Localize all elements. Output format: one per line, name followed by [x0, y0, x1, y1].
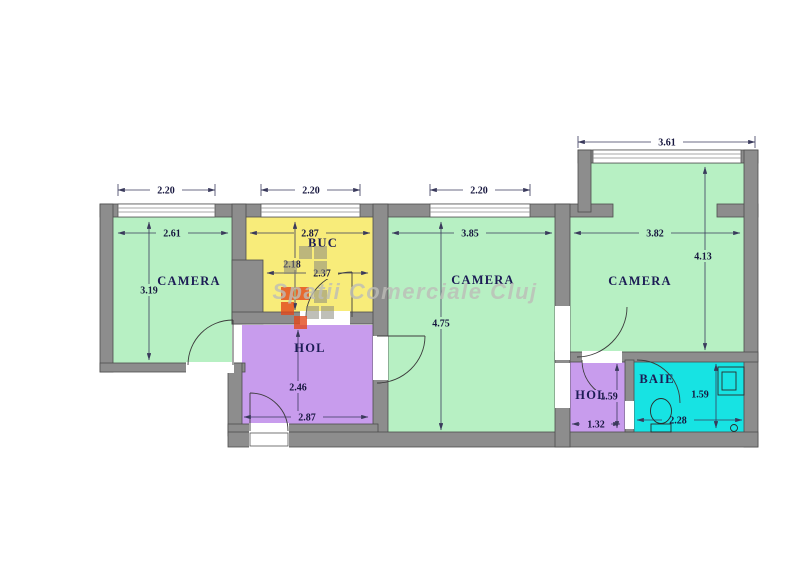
- dim-label: 4.75: [432, 319, 450, 330]
- dim-label: 2.20: [302, 186, 320, 197]
- wall-segment: [373, 204, 388, 433]
- dim-label: 1.32: [587, 420, 605, 431]
- dim-label: 2.61: [163, 229, 181, 240]
- logo-square: [314, 261, 327, 274]
- dim-label: 3.61: [658, 138, 676, 149]
- door-opening-hol-small: [582, 351, 622, 363]
- wall-segment: [578, 150, 591, 212]
- label-camera-left: CAMERA: [157, 274, 220, 288]
- floor-plan-svg: 2.20 2.20 2.20 3.61 2.61: [0, 0, 800, 566]
- dim-label: 2.46: [289, 383, 307, 394]
- dim-label: 3.82: [646, 229, 664, 240]
- door-opening-baie: [625, 401, 634, 429]
- dim-label: 2.87: [298, 413, 316, 424]
- logo-square-red: [294, 316, 307, 329]
- door-opening-camera-left: [186, 362, 234, 373]
- wall-segment: [228, 432, 758, 447]
- outside-patch: [570, 150, 578, 204]
- room-camera-middle: [388, 217, 555, 433]
- dim-label: 4.13: [694, 252, 712, 263]
- dim-label: 2.20: [470, 186, 488, 197]
- door-opening-hol-small-left: [555, 363, 570, 408]
- wall-segment: [228, 363, 242, 433]
- label-hol-main: HOL: [294, 341, 325, 355]
- dim-label: 2.20: [157, 186, 175, 197]
- logo-square: [321, 306, 334, 319]
- wall-segment: [744, 150, 758, 447]
- window-buc: [261, 204, 360, 217]
- logo-square: [314, 246, 327, 259]
- window-camera-left: [118, 204, 215, 217]
- window-camera-middle: [430, 204, 530, 217]
- entrance-step: [250, 433, 288, 446]
- label-camera-right: CAMERA: [608, 274, 671, 288]
- door-opening-camera-middle: [373, 336, 388, 380]
- dim-window-buc: 2.20: [261, 184, 360, 197]
- floor-plan-page: 2.20 2.20 2.20 3.61 2.61: [0, 0, 800, 566]
- dim-window-bay: 3.61: [578, 136, 755, 149]
- dim-window-middle: 2.20: [430, 184, 530, 197]
- window-bay: [593, 150, 741, 163]
- dim-label: 1.59: [691, 390, 709, 401]
- dim-label: 2.28: [669, 416, 687, 427]
- door-opening-camera-right: [555, 306, 570, 360]
- watermark-text: Spatii Comerciale Cluj: [272, 279, 537, 304]
- dim-window-left: 2.20: [118, 184, 215, 197]
- label-baie: BAIE: [639, 372, 674, 386]
- logo-square: [284, 261, 297, 274]
- logo-square: [299, 246, 312, 259]
- dim-label: 3.19: [140, 286, 158, 297]
- label-hol-small: HOL: [575, 388, 606, 402]
- wall-segment: [100, 204, 113, 372]
- dim-label: 3.85: [461, 229, 479, 240]
- logo-square: [306, 306, 319, 319]
